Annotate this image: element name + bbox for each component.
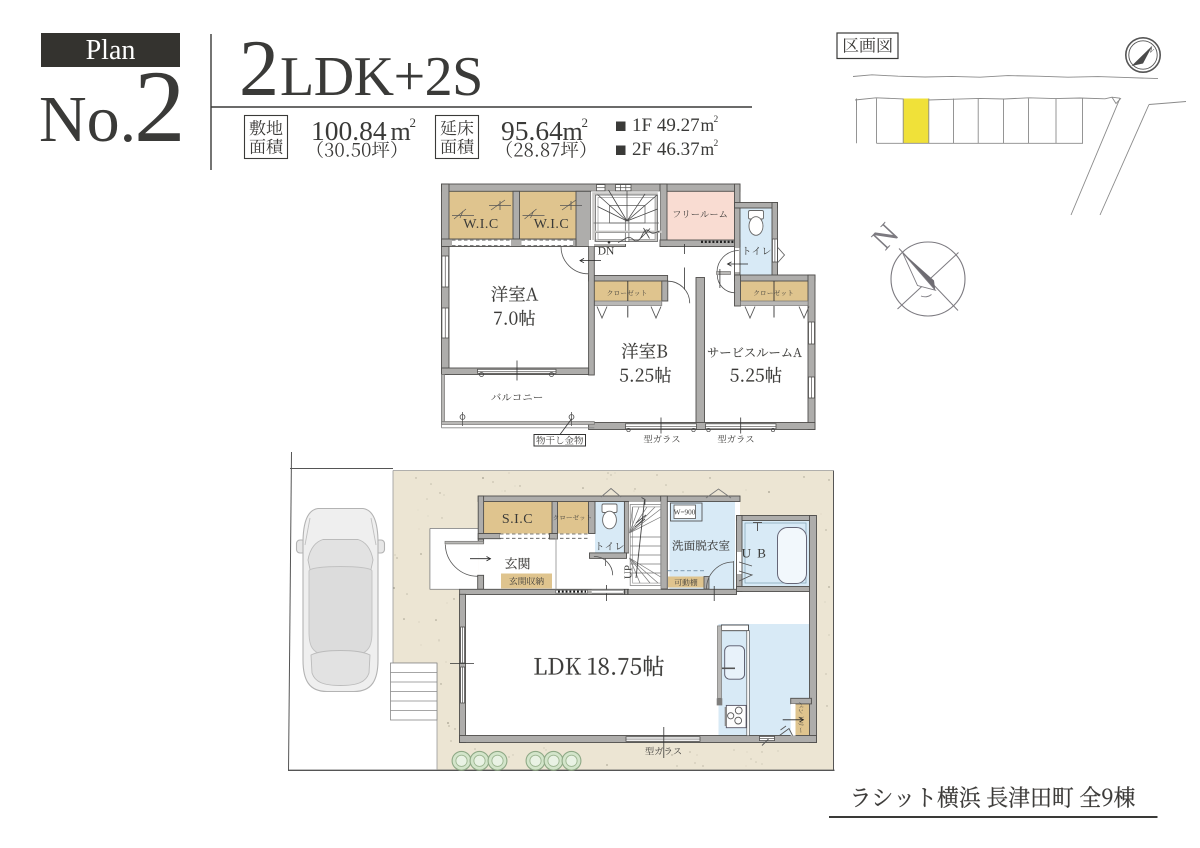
svg-text:2: 2 bbox=[714, 139, 719, 149]
svg-text:2: 2 bbox=[582, 115, 589, 130]
svg-text:2: 2 bbox=[134, 50, 186, 164]
svg-text:2: 2 bbox=[410, 115, 417, 130]
svg-text:U B: U B bbox=[742, 546, 768, 561]
svg-text:W.I.C: W.I.C bbox=[534, 217, 569, 232]
svg-text:No.: No. bbox=[39, 83, 136, 156]
svg-text:DN: DN bbox=[598, 246, 615, 258]
svg-text:W.I.C: W.I.C bbox=[463, 217, 498, 232]
svg-text:1F 49.27: 1F 49.27 bbox=[632, 115, 700, 136]
svg-text:m: m bbox=[563, 117, 583, 146]
svg-text:2: 2 bbox=[239, 25, 279, 113]
svg-text:m: m bbox=[391, 117, 411, 146]
svg-text:95.64: 95.64 bbox=[501, 115, 563, 146]
svg-text:N: N bbox=[864, 216, 905, 256]
svg-text:Plan: Plan bbox=[86, 35, 136, 66]
svg-text:m: m bbox=[701, 139, 715, 159]
svg-text:W=900: W=900 bbox=[674, 509, 696, 517]
svg-text:2F 46.37: 2F 46.37 bbox=[632, 139, 700, 160]
svg-text:LDK+2S: LDK+2S bbox=[280, 46, 483, 108]
svg-text:UP: UP bbox=[623, 565, 635, 579]
svg-text:m: m bbox=[701, 115, 715, 135]
svg-text:2: 2 bbox=[714, 115, 719, 125]
svg-text:S.I.C: S.I.C bbox=[502, 512, 533, 527]
